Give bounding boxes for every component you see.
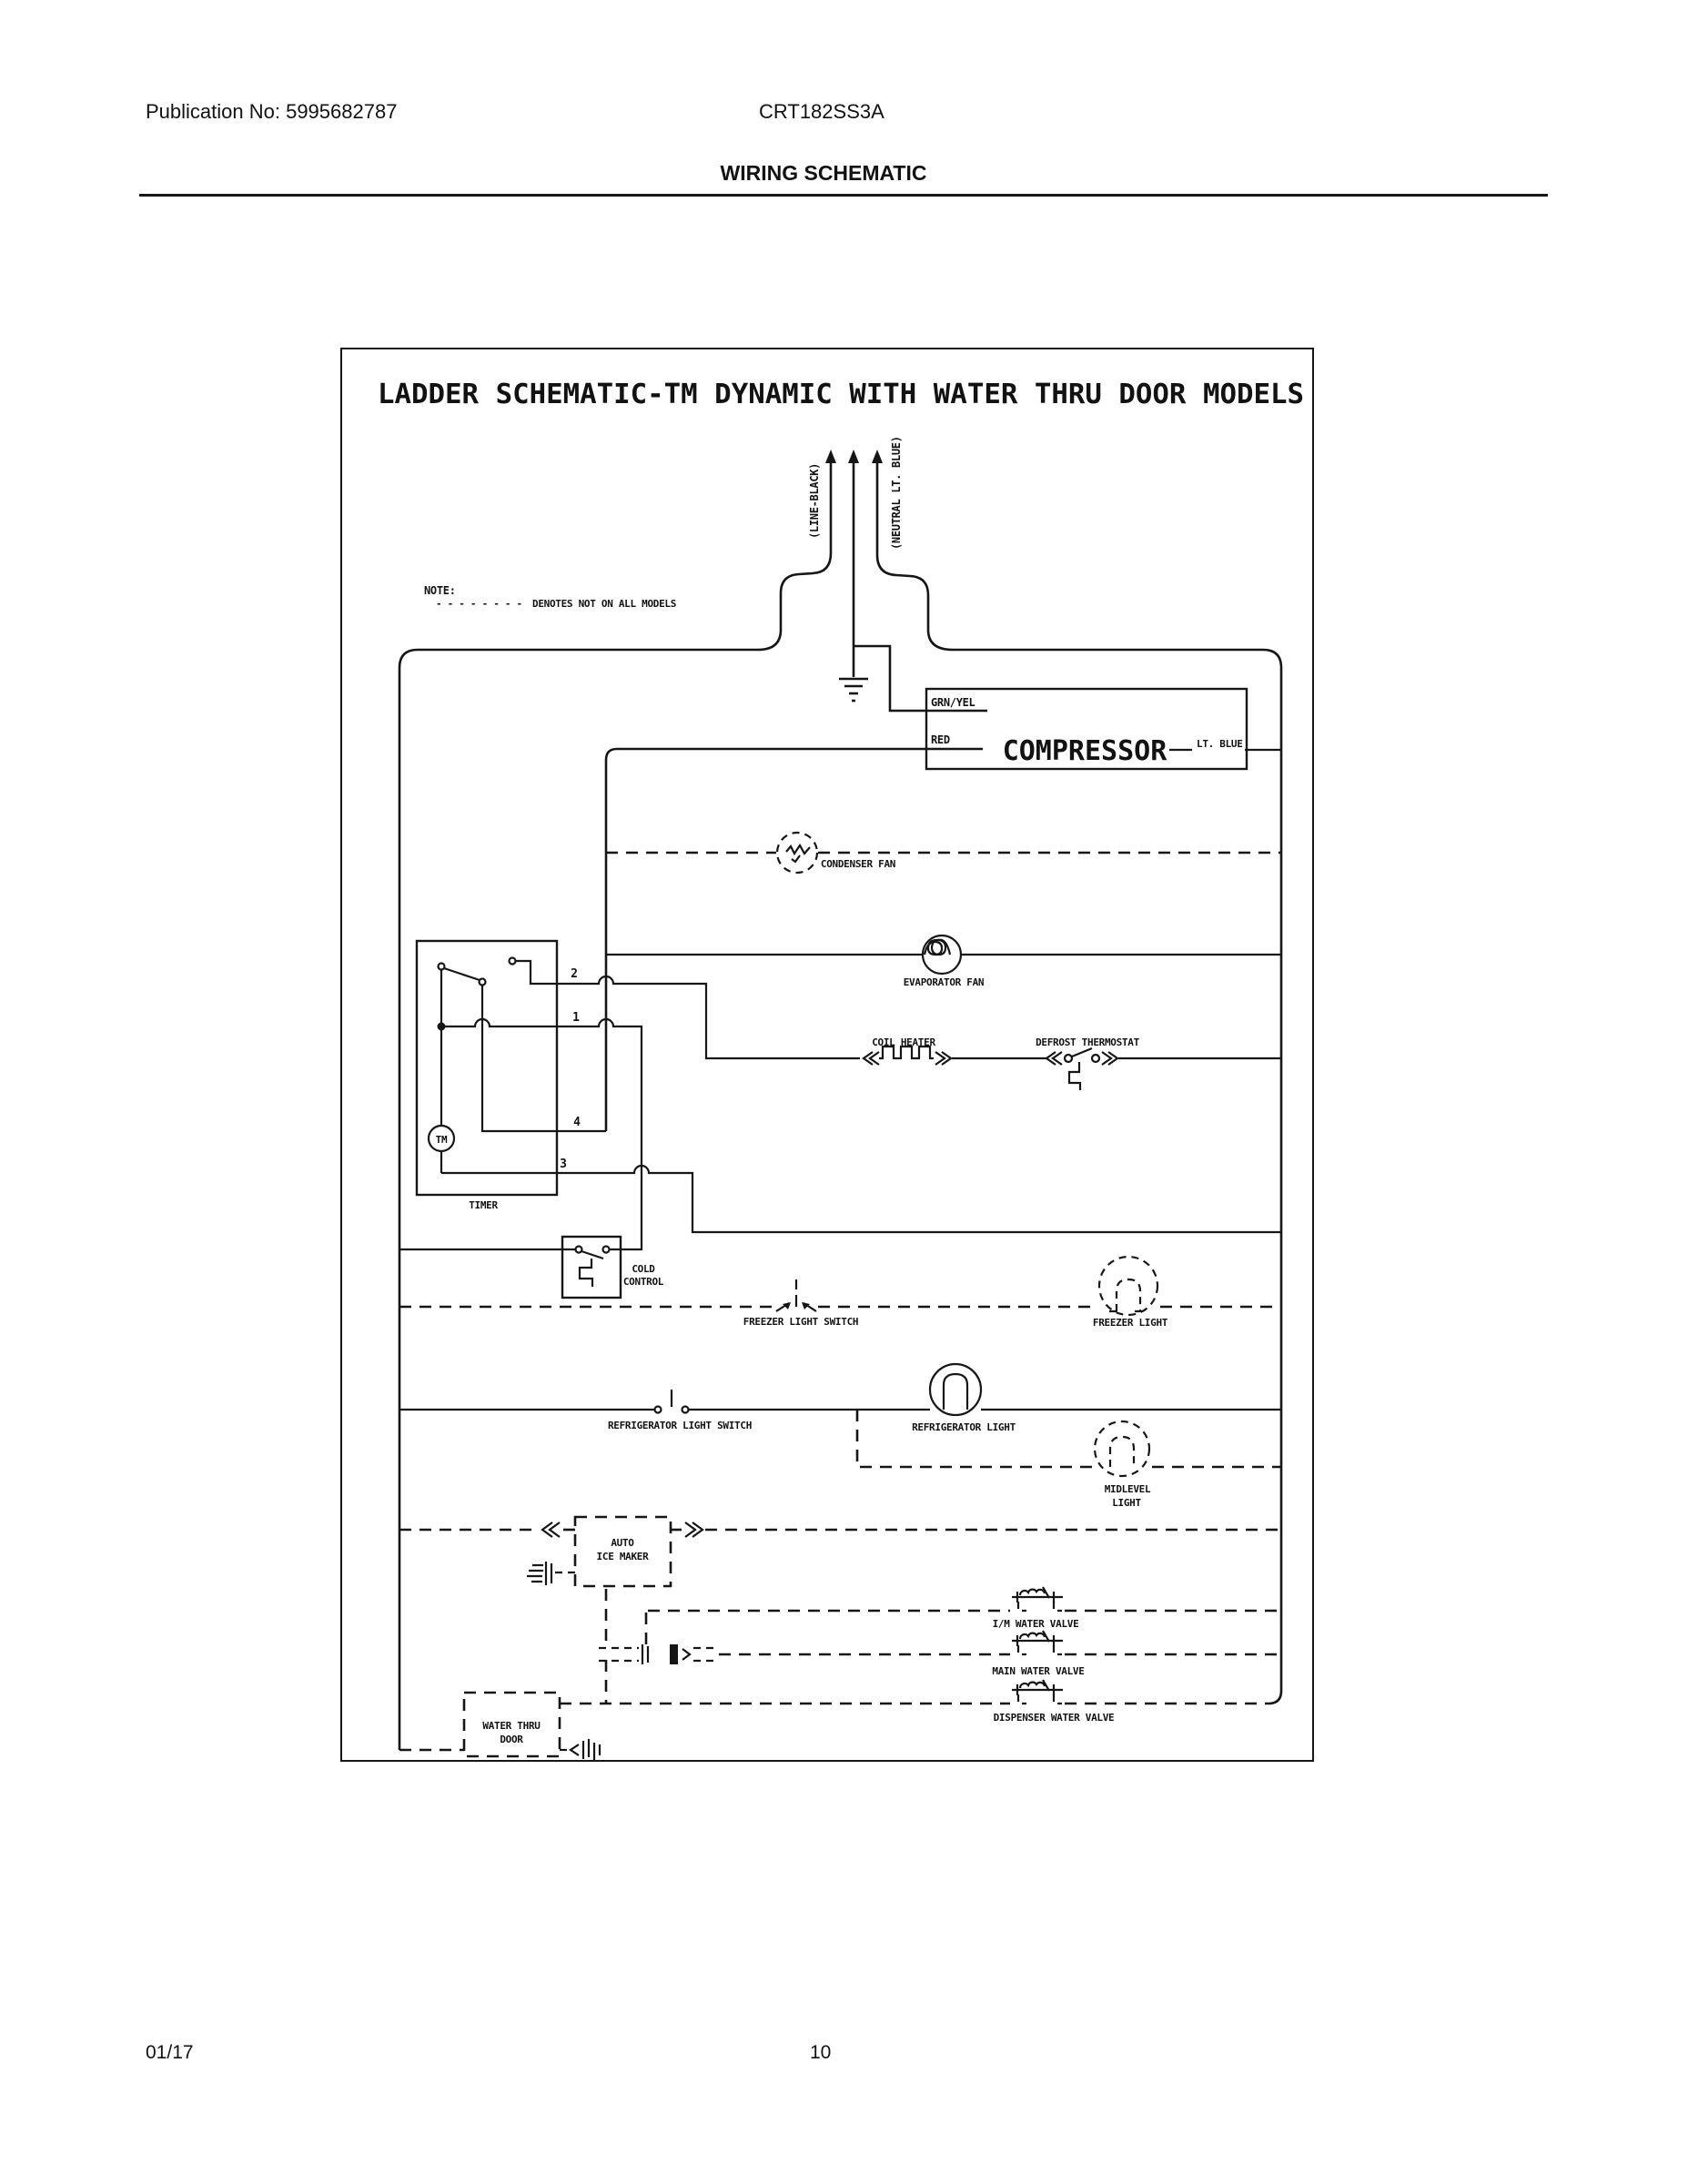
neutral-wire: [877, 460, 953, 650]
red-lead-and-feeder: [606, 749, 983, 1131]
cold-control-left-contact: [576, 1247, 582, 1253]
note-label: NOTE:: [424, 584, 456, 597]
coil-heater-right-chevrons-icon: [935, 1052, 951, 1065]
footer-date: 01/17: [146, 2042, 194, 2063]
refrigerator-light-bulb-icon: [930, 1364, 981, 1415]
lt-blue-label: LT. BLUE: [1197, 738, 1243, 750]
page-title: WIRING SCHEMATIC: [720, 161, 926, 185]
im-water-valve-label: I/M WATER VALVE: [993, 1618, 1079, 1630]
note-dashes: - - - - - - - -: [436, 598, 522, 610]
freezer-light-switch-icon: [776, 1279, 816, 1311]
timer-box: [417, 941, 557, 1195]
freezer-light-bulb-icon: [1099, 1257, 1157, 1315]
left-rail: [399, 650, 758, 1750]
footer-page-number: 10: [810, 2042, 831, 2063]
freezer-light-switch-label: FREEZER LIGHT SWITCH: [743, 1316, 858, 1328]
ice-maker-label-1: AUTO: [611, 1537, 634, 1549]
condenser-fan-label: CONDENSER FAN: [821, 858, 895, 870]
defrost-right-contact: [1092, 1055, 1099, 1062]
water-thru-door-label-2: DOOR: [500, 1734, 523, 1745]
defrost-thermostat-label: DEFROST THERMOSTAT: [1036, 1036, 1139, 1048]
publication-number: Publication No: 5995682787: [146, 100, 397, 123]
document-page: Publication No: 5995682787 CRT182SS3A WI…: [0, 0, 1688, 2184]
timer-blade-contact: [480, 979, 486, 986]
row3-wire: [441, 1166, 1281, 1232]
red-label: RED: [931, 733, 950, 746]
timer-contact-2: [510, 958, 516, 965]
schematic-title: LADDER SCHEMATIC-TM DYNAMIC WITH WATER T…: [378, 379, 1304, 410]
midlevel-light-filament: [1110, 1437, 1134, 1467]
main-water-valve-label: MAIN WATER VALVE: [992, 1665, 1084, 1677]
cold-control-label-2: CONTROL: [623, 1276, 664, 1288]
refrigerator-light-switch-icon: [655, 1390, 689, 1413]
ice-maker-right-chevrons-icon: [685, 1522, 702, 1537]
timer-pivot-contact: [439, 964, 445, 970]
water-thru-door-label-1: WATER THRU: [482, 1720, 541, 1732]
note-text: DENOTES NOT ON ALL MODELS: [532, 598, 676, 610]
header-rule: [139, 194, 1548, 197]
terminal-4-label: 4: [573, 1116, 581, 1129]
water-thru-door-plug-icon: [560, 1739, 600, 1761]
compressor-label: COMPRESSOR: [1003, 735, 1168, 767]
row1-wire: [441, 1019, 642, 1249]
terminal-3-label: 3: [560, 1158, 567, 1171]
refrigerator-light-circuit: REFRIGERATOR LIGHT SWITCH REFRIGERATOR L…: [399, 1364, 1281, 1433]
timer-label: TIMER: [469, 1199, 498, 1211]
freezer-light-filament: [1109, 1279, 1147, 1311]
line-black-label: (LINE-BLACK): [808, 463, 821, 539]
main-valve-coil-icon: [1012, 1631, 1063, 1654]
cold-control: COLD CONTROL: [399, 1237, 664, 1298]
wiring-schematic-canvas: Publication No: 5995682787 CRT182SS3A WI…: [0, 0, 1688, 2184]
timer-motor-label: TM: [436, 1134, 448, 1146]
cold-control-blade: [581, 1251, 603, 1259]
neutral-arrow-icon: [872, 450, 883, 463]
defrost-left-contact: [1065, 1055, 1072, 1062]
ground-arrow-icon: [848, 450, 859, 463]
line-arrow-icon: [825, 450, 836, 463]
ladder-rails: [399, 650, 1281, 1750]
row2-wire: [516, 961, 860, 1058]
defrost-circuit: COIL HEATER DEFROST THERMOSTAT: [864, 1036, 1281, 1090]
defrost-right-chevrons-icon: [1102, 1052, 1117, 1065]
timer: TIMER TM 2 1 4 3: [417, 941, 1281, 1249]
water-valve-circuits: I/M WATER VALVE MAIN WATER VALVE DISPENS…: [560, 1587, 1281, 1724]
cold-control-zigzag: [580, 1259, 592, 1287]
condenser-fan-squiggle: [786, 845, 810, 862]
right-rail: [953, 650, 1281, 1704]
coil-heater-left-chevrons-icon: [864, 1052, 879, 1065]
defrost-sensor-zigzag: [1069, 1062, 1080, 1090]
model-number: CRT182SS3A: [759, 100, 884, 123]
refrigerator-light-label: REFRIGERATOR LIGHT: [912, 1421, 1016, 1433]
midlevel-light-label-2: LIGHT: [1112, 1497, 1141, 1509]
evaporator-fan-row: EVAPORATOR FAN: [606, 935, 1281, 988]
evaporator-fan-label: EVAPORATOR FAN: [904, 976, 985, 988]
condenser-fan-motor-icon: [777, 833, 817, 873]
cold-control-right-contact: [603, 1247, 610, 1253]
dispenser-water-valve-label: DISPENSER WATER VALVE: [994, 1712, 1115, 1724]
grn-yel-label: GRN/YEL: [931, 696, 975, 709]
im-valve-coil-icon: [1012, 1587, 1063, 1611]
ice-maker-circuit: AUTO ICE MAKER: [399, 1517, 1281, 1586]
ice-maker-plug-icon: [527, 1562, 575, 1585]
terminal-2-label: 2: [571, 967, 578, 981]
timer-blade: [444, 968, 480, 980]
midlevel-branch: [857, 1410, 1094, 1467]
midlevel-light-label-1: MIDLEVEL: [1105, 1483, 1151, 1495]
dispenser-valve-coil-icon: [1012, 1680, 1063, 1704]
supply-cord: (LINE-BLACK) (NEUTRAL LT. BLUE): [758, 436, 953, 701]
freezer-light-label: FREEZER LIGHT: [1093, 1317, 1168, 1329]
schematic-border: [341, 349, 1313, 1761]
condenser-fan-row: CONDENSER FAN: [606, 833, 1281, 873]
defrost-blade: [1072, 1048, 1092, 1057]
ice-maker-left-chevrons-icon: [542, 1522, 560, 1537]
row4-wire: [482, 986, 606, 1131]
refrigerator-light-filament: [944, 1374, 967, 1410]
neutral-label: (NEUTRAL LT. BLUE): [890, 436, 903, 550]
defrost-left-chevrons-icon: [1046, 1052, 1062, 1065]
terminal-1-label: 1: [572, 1011, 580, 1025]
cold-control-label-1: COLD: [632, 1263, 655, 1275]
main-valve-connector-icon: [599, 1644, 715, 1664]
ground-icon: [839, 679, 868, 701]
refrigerator-light-switch-label: REFRIGERATOR LIGHT SWITCH: [608, 1420, 752, 1431]
ice-maker-label-2: ICE MAKER: [597, 1551, 650, 1562]
freezer-light-circuit: FREEZER LIGHT SWITCH FREEZER LIGHT: [399, 1257, 1281, 1329]
midlevel-light-bulb-icon: [1095, 1421, 1149, 1476]
